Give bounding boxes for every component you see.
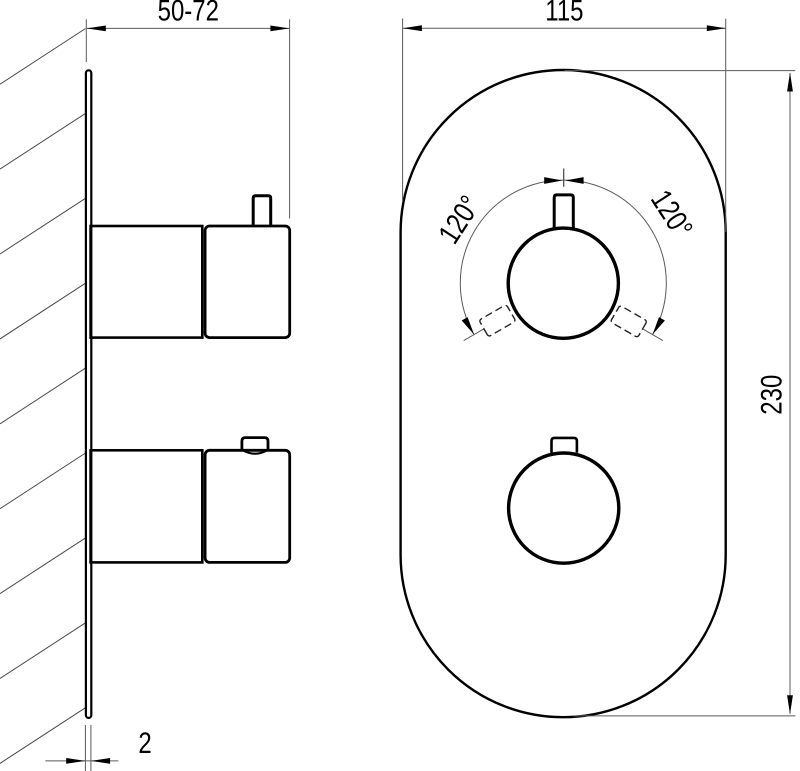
svg-text:50-72: 50-72 (158, 0, 219, 27)
svg-text:115: 115 (545, 0, 583, 27)
svg-text:2: 2 (138, 725, 151, 759)
svg-text:230: 230 (754, 375, 788, 415)
